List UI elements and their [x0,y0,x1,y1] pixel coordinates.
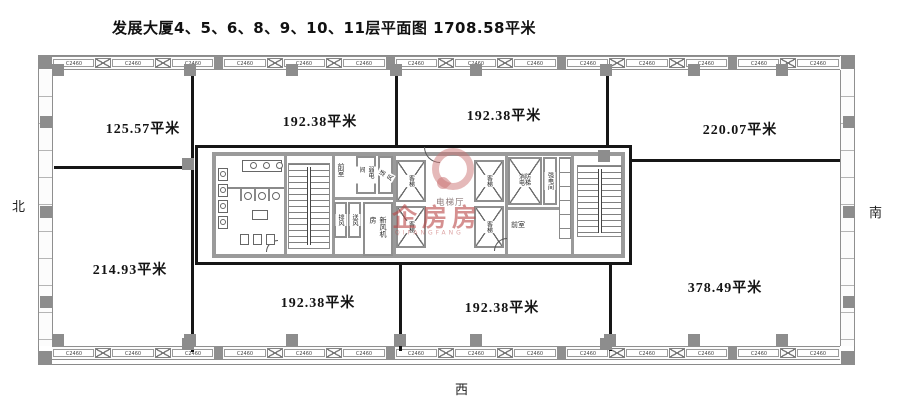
supply-air-shaft: 送风 [378,156,393,194]
window-code: C2460 [296,350,312,356]
structural-column [598,150,610,162]
core-partition [284,152,287,258]
elevator-hall-label: 电梯厅 [436,196,465,208]
window-code: C2460 [125,60,141,66]
structural-column [40,206,52,218]
window-code: C2460 [237,350,253,356]
window-code: C2460 [698,350,714,356]
compass-west-label: 西 [455,379,468,398]
room-area-label: 220.07平米 [703,119,778,139]
window-code: C2460 [296,60,312,66]
window-code: C2460 [66,350,82,356]
pier [728,57,737,69]
window-mullion-icon [438,348,454,358]
interior-wall [606,69,609,146]
exhaust-air-shaft: 排风 [334,202,347,238]
window-label: C2460 [686,349,727,357]
interior-wall [395,69,398,146]
supply-air-label-2: 送风 [349,214,360,226]
toilet-fixture [253,234,262,245]
toilet-fixture [276,162,283,169]
window-mullion-icon [155,58,171,68]
pier [214,347,223,359]
compass-north-label: 北 [12,196,25,215]
staircase-west [288,163,330,249]
window-label: C2460 [738,349,779,357]
window-label: C2460 [284,349,325,357]
stair-rail [598,169,602,233]
window-label: C2460 [343,349,384,357]
passenger-elevator-shaft: 客梯 [396,160,426,202]
window-label: C2460 [626,59,667,67]
room-area-label: 378.49平米 [688,277,763,297]
pier [214,57,223,69]
window-code: C2460 [579,350,595,356]
window-mullion-icon [669,58,685,68]
pier [386,347,395,359]
window-mullion-icon [267,58,283,68]
pier [557,57,566,69]
toilet-fixture [266,234,275,245]
toilet-fixture [263,162,270,169]
window-label: C2460 [514,59,555,67]
room-area-label: 214.93平米 [93,259,168,279]
toilet-fixture [250,162,257,169]
passenger-elevator-label: 客梯 [406,221,417,233]
toilet-fixture [220,187,226,193]
pier [728,347,737,359]
window-mullion-icon [326,58,342,68]
room-area-label: 192.38平米 [283,111,358,131]
structural-column [600,64,612,76]
window-code: C2460 [698,60,714,66]
toilet-fixture [220,219,226,225]
toilet-fixture [220,203,226,209]
interior-wall [630,159,840,162]
fresh-air-room: 新风机房 [363,202,393,256]
weak-electric-label: 弱电间 [356,167,376,184]
passenger-elevator-shaft: 客梯 [396,206,426,248]
window-label: C2460 [455,349,496,357]
window-label: C2460 [626,349,667,357]
stair-rail [307,167,311,245]
fire-elevator-label: 消防电梯 [517,175,533,187]
corner-column [841,55,855,69]
structural-column [390,64,402,76]
window-code: C2460 [408,60,424,66]
window-label: C2460 [567,349,608,357]
window-code: C2460 [810,350,826,356]
window-label: C2460 [224,349,265,357]
window-mullion-icon [669,348,685,358]
window-label: C2460 [224,59,265,67]
exhaust-air-label: 排风 [335,214,346,226]
plan-title: 发展大厦4、5、6、8、9、10、11层平面图 1708.58平米 [112,17,536,38]
toilet-fixture [220,171,226,177]
window-mullion-icon [780,348,796,358]
structural-column [40,116,52,128]
toilet-fixture [240,188,242,201]
window-band-top: C2460C2460C2460C2460C2460C2460C2460C2460… [52,56,840,70]
corner-column [38,351,52,365]
room-area-label: 125.57平米 [106,118,181,138]
structural-column [182,338,194,350]
interior-wall [54,166,192,169]
window-label: C2460 [53,349,94,357]
window-mullion-icon [95,58,111,68]
structural-column [776,334,788,346]
passenger-elevator-label: 客梯 [484,221,495,233]
window-label: C2460 [112,349,153,357]
structural-column [470,64,482,76]
window-label: C2460 [112,59,153,67]
window-label: C2460 [514,349,555,357]
window-code: C2460 [751,350,767,356]
structural-column [843,116,855,128]
compass-south-label: 南 [869,202,882,221]
toilet-fixture [254,188,256,201]
window-label: C2460 [738,59,779,67]
structural-column [182,158,194,170]
window-code: C2460 [408,350,424,356]
structural-column [688,334,700,346]
passenger-elevator-label: 客梯 [406,175,417,187]
toilet-fixture [268,188,270,201]
supply-air-shaft-2: 送风 [348,202,361,238]
fresh-air-room-label: 新风机房 [367,217,389,242]
window-label: C2460 [797,349,838,357]
fire-elevator-shaft: 消防电梯 [508,157,542,205]
riser-duct-strip [559,157,571,239]
supply-air-label: 送风 [376,167,396,183]
window-code: C2460 [639,350,655,356]
structural-column [843,206,855,218]
corner-column [841,351,855,365]
room-area-label: 192.38平米 [281,292,356,312]
structural-column [184,64,196,76]
structural-column [286,334,298,346]
window-band-bottom: C2460C2460C2460C2460C2460C2460C2460C2460… [52,346,840,360]
front-room-left-label: 前室 [336,163,346,177]
window-label: C2460 [797,59,838,67]
structural-column [600,338,612,350]
window-mullion-icon [497,348,513,358]
window-code: C2460 [468,350,484,356]
strong-electric-label: 强电间 [545,172,556,190]
window-code: C2460 [356,350,372,356]
structural-column [52,334,64,346]
window-code: C2460 [356,60,372,66]
window-code: C2460 [751,60,767,66]
floor-plan-canvas: 发展大厦4、5、6、8、9、10、11层平面图 1708.58平米 北 南 西 … [0,0,900,413]
window-code: C2460 [66,60,82,66]
passenger-elevator-shaft: 客梯 [474,160,504,202]
window-code: C2460 [527,60,543,66]
strong-electric-room: 强电间 [543,157,557,205]
structural-column [52,64,64,76]
toilet-fixture [240,234,249,245]
structural-column [843,296,855,308]
structural-column [286,64,298,76]
window-mullion-icon [155,348,171,358]
room-area-label: 192.38平米 [467,105,542,125]
window-code: C2460 [125,350,141,356]
toilet-fixture [244,192,252,200]
window-label: C2460 [343,59,384,67]
weak-electric-room: 弱电间 [356,156,376,194]
toilet-fixture [252,210,268,220]
structural-column [394,334,406,346]
core-partition [332,197,396,200]
staircase-east [577,165,622,237]
toilet-fixture [272,192,280,200]
structural-column [688,64,700,76]
window-code: C2460 [579,60,595,66]
pier [557,347,566,359]
window-mullion-icon [95,348,111,358]
structural-column [776,64,788,76]
corner-column [38,55,52,69]
window-mullion-icon [438,58,454,68]
passenger-elevator-label: 客梯 [484,175,495,187]
window-code: C2460 [810,60,826,66]
window-mullion-icon [326,348,342,358]
front-room-right-label: 前室 [511,220,525,230]
window-code: C2460 [527,350,543,356]
interior-wall [191,69,194,352]
window-mullion-icon [267,348,283,358]
core-partition [571,152,574,258]
toilet-fixture [258,192,266,200]
window-code: C2460 [639,60,655,66]
window-mullion-icon [497,58,513,68]
structural-column [40,296,52,308]
window-code: C2460 [237,60,253,66]
structural-column [470,334,482,346]
room-area-label: 192.38平米 [465,297,540,317]
